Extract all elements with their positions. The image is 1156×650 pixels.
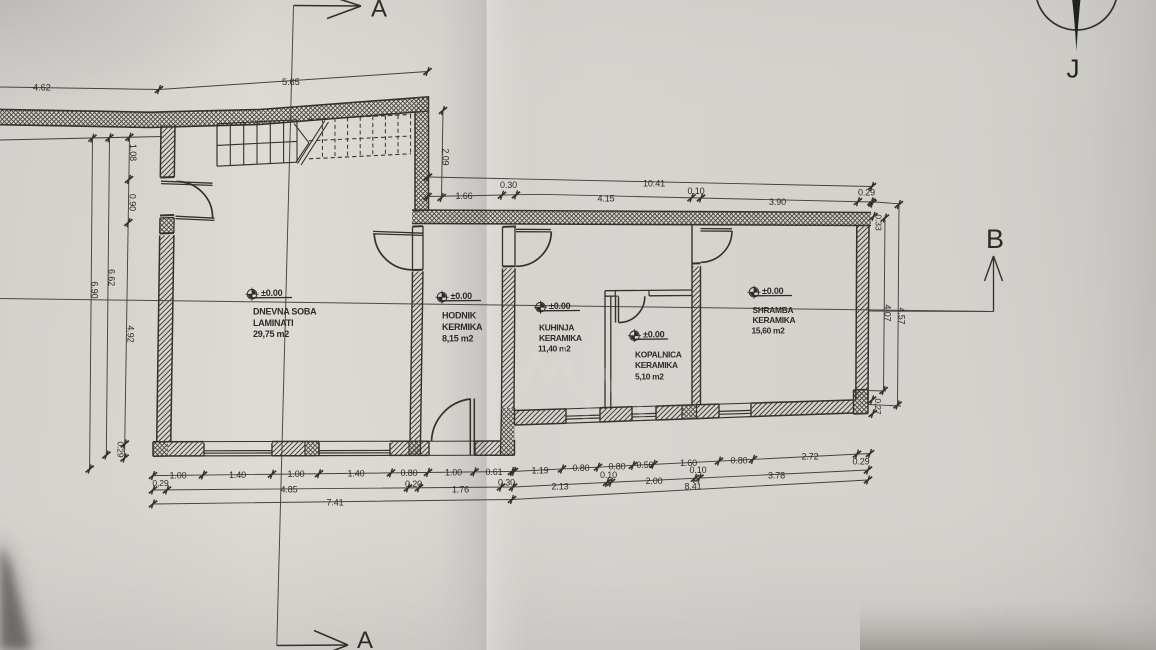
svg-text:3.90: 3.90: [769, 197, 786, 207]
svg-text:4.85: 4.85: [280, 484, 297, 494]
svg-text:0.80: 0.80: [572, 463, 589, 473]
svg-text:0.80: 0.80: [400, 468, 417, 478]
svg-text:2.72: 2.72: [801, 452, 818, 462]
svg-text:KERMIKA: KERMIKA: [442, 322, 483, 332]
svg-text:1.40: 1.40: [229, 470, 246, 480]
svg-text:3.78: 3.78: [768, 470, 785, 480]
svg-text:HODNIK: HODNIK: [442, 311, 477, 321]
svg-text:0.30: 0.30: [500, 180, 517, 190]
svg-text:±0.00: ±0.00: [762, 286, 784, 296]
svg-text:29,75 m2: 29,75 m2: [253, 329, 289, 339]
svg-text:0,29: 0,29: [152, 478, 169, 488]
svg-text:5.65: 5.65: [282, 77, 300, 87]
svg-text:0.29: 0.29: [115, 441, 125, 458]
svg-text:1.19: 1.19: [531, 465, 548, 475]
svg-text:1.08: 1.08: [128, 144, 138, 161]
svg-text:4.92: 4.92: [126, 325, 136, 342]
svg-text:4.57: 4.57: [896, 307, 906, 324]
svg-text:1.00: 1.00: [445, 467, 462, 477]
svg-text:1.00: 1.00: [287, 469, 304, 479]
svg-text:KERAMIKA: KERAMIKA: [539, 333, 582, 343]
svg-text:1.76: 1.76: [452, 485, 469, 495]
svg-text:±0.00: ±0.00: [451, 291, 473, 301]
svg-text:1.40: 1.40: [347, 469, 364, 479]
svg-text:±0.00: ±0.00: [643, 330, 665, 340]
svg-text:0.29: 0.29: [852, 457, 869, 467]
svg-text:SHRAMBA: SHRAMBA: [753, 305, 794, 315]
svg-text:8,15 m2: 8,15 m2: [442, 334, 474, 344]
svg-text:KERAMIKA: KERAMIKA: [753, 315, 796, 325]
svg-text:4.15: 4.15: [597, 194, 614, 204]
svg-text:2.00: 2.00: [645, 476, 662, 486]
svg-text:KUHINJA: KUHINJA: [539, 323, 574, 333]
svg-text:0.30: 0.30: [498, 477, 515, 487]
svg-text:5,10 m2: 5,10 m2: [635, 372, 664, 382]
svg-text:4.07: 4.07: [882, 304, 892, 321]
svg-text:6.62: 6.62: [107, 269, 117, 286]
svg-text:0.29: 0.29: [858, 187, 875, 197]
svg-text:DNEVNA SOBA: DNEVNA SOBA: [253, 307, 317, 317]
svg-text:±0.00: ±0.00: [261, 288, 283, 298]
svg-text:0.80: 0.80: [730, 455, 747, 465]
svg-text:KOPALNICA: KOPALNICA: [635, 350, 682, 360]
svg-text:0.50: 0.50: [636, 460, 653, 470]
svg-text:15,60 m2: 15,60 m2: [752, 326, 786, 336]
svg-text:0.10: 0.10: [600, 470, 617, 480]
svg-text:NAVTEX OBRAZEC: NAVTEX OBRAZEC: [969, 602, 1156, 625]
svg-text:4.62: 4.62: [33, 83, 51, 93]
svg-text:KERAMIKA: KERAMIKA: [635, 360, 678, 370]
svg-text:10.41: 10.41: [643, 178, 665, 188]
svg-text:B: B: [986, 224, 1004, 254]
svg-text:0.90: 0.90: [128, 194, 138, 211]
svg-text:6.90: 6.90: [90, 281, 100, 298]
svg-text:J: J: [1067, 54, 1080, 84]
svg-text:1.00: 1.00: [169, 471, 186, 481]
svg-text:LAMINATI: LAMINATI: [253, 318, 293, 328]
svg-text:8.41: 8.41: [684, 482, 701, 492]
svg-text:2.09: 2.09: [440, 148, 450, 165]
svg-text:0.61: 0.61: [485, 467, 502, 477]
svg-text:1.66: 1.66: [455, 191, 472, 201]
svg-text:2.13: 2.13: [551, 481, 568, 491]
svg-text:0.10: 0.10: [689, 465, 706, 475]
svg-text:±0.00: ±0.00: [549, 301, 571, 311]
svg-text:A: A: [371, 0, 387, 23]
svg-text:A: A: [357, 627, 373, 650]
svg-text:7.41: 7.41: [326, 497, 343, 507]
svg-text:0.33: 0.33: [874, 214, 884, 231]
svg-text:0.20: 0.20: [405, 479, 422, 489]
svg-text:0.10: 0.10: [687, 186, 704, 196]
